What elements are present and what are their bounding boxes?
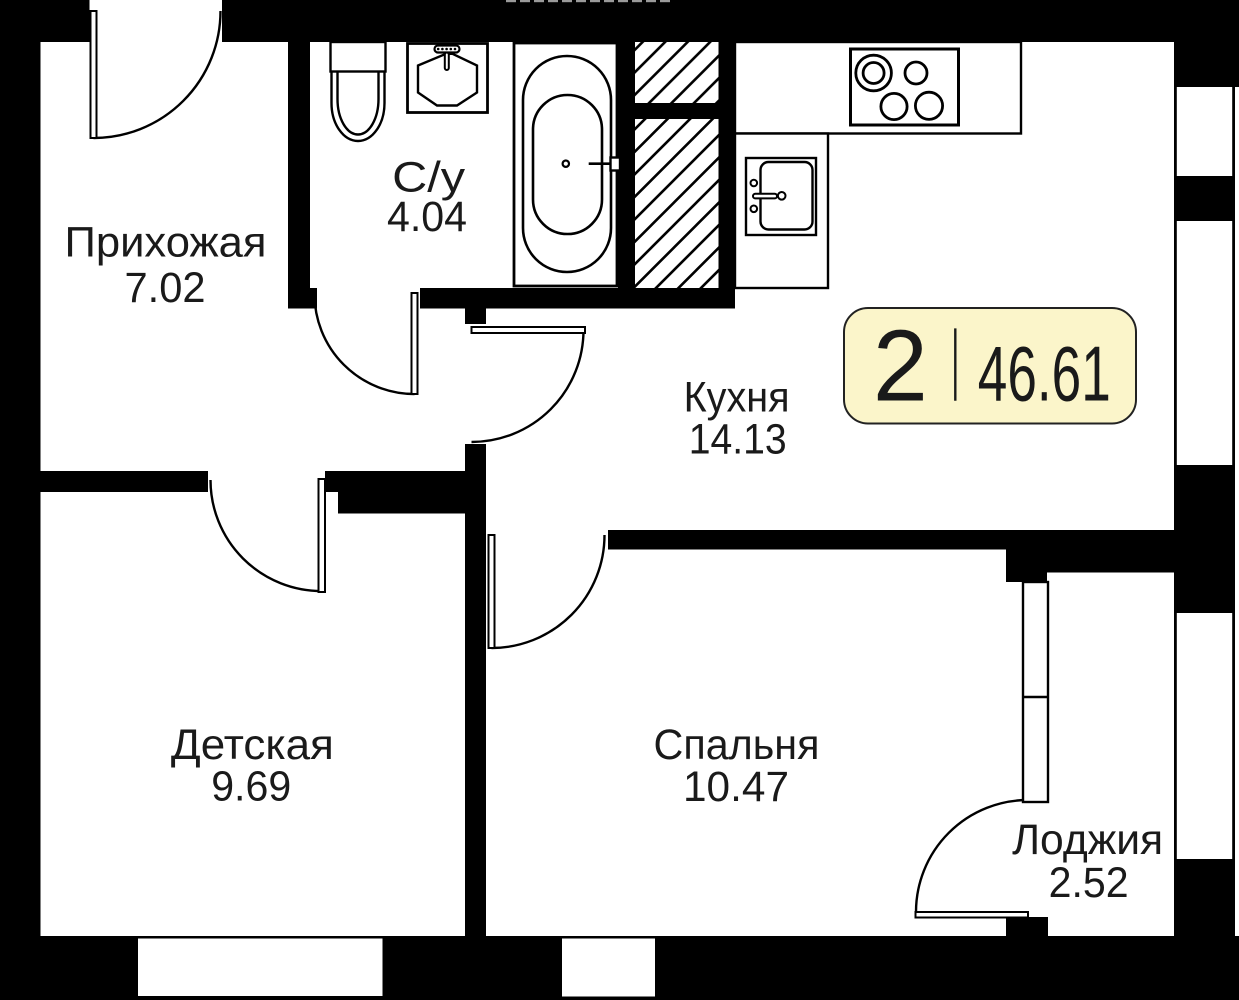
- svg-text:7.02: 7.02: [125, 265, 206, 312]
- svg-text:4.04: 4.04: [387, 194, 467, 241]
- svg-text:9.69: 9.69: [211, 764, 291, 811]
- svg-text:Лоджия: Лоджия: [1012, 817, 1163, 864]
- svg-text:2: 2: [873, 309, 928, 423]
- svg-text:Спальня: Спальня: [654, 722, 820, 769]
- svg-text:Детская: Детская: [171, 722, 334, 769]
- svg-text:2.52: 2.52: [1049, 860, 1129, 907]
- svg-text:14.13: 14.13: [689, 417, 787, 464]
- svg-text:Прихожая: Прихожая: [65, 220, 267, 267]
- svg-text:Кухня: Кухня: [684, 374, 790, 421]
- svg-text:46.61: 46.61: [978, 330, 1111, 418]
- svg-text:10.47: 10.47: [683, 764, 789, 811]
